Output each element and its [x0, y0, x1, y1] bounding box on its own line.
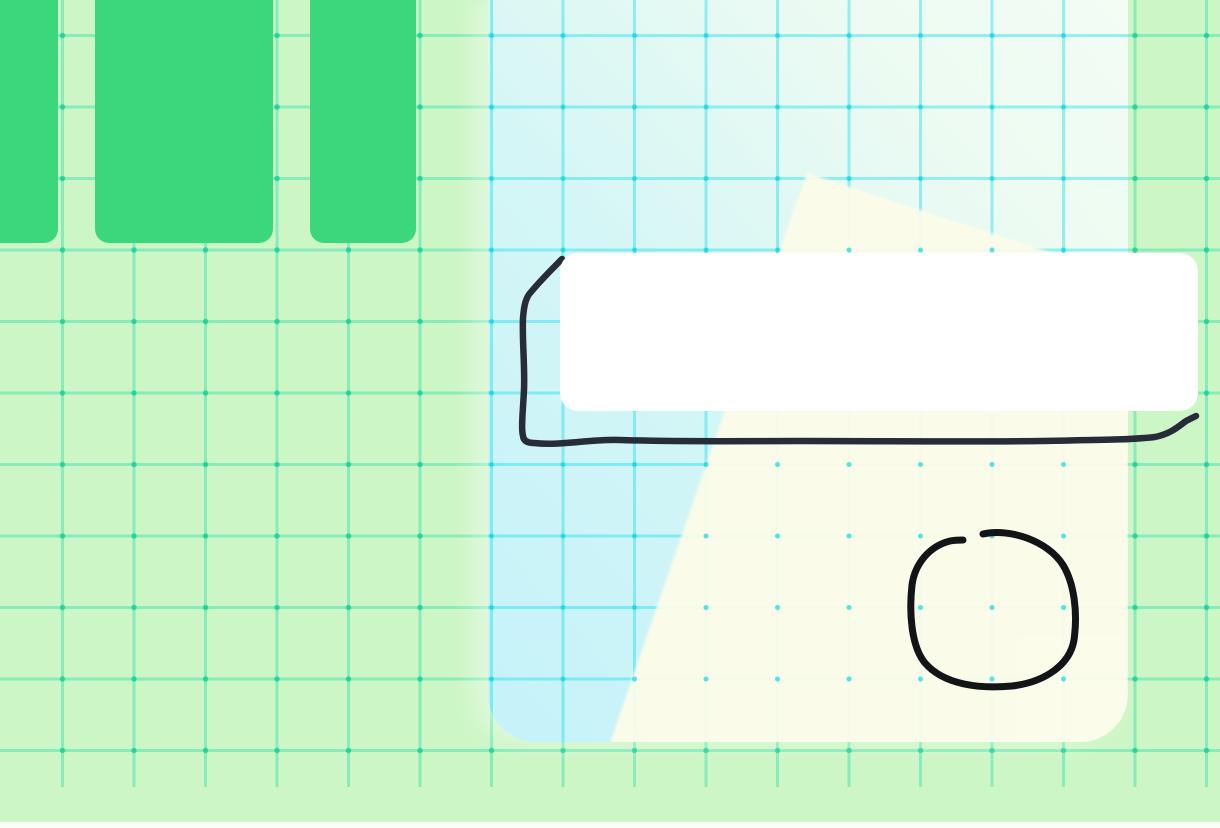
- window-bottom-edge: [0, 822, 1220, 828]
- note-box[interactable]: [560, 253, 1198, 411]
- ink-layer: [0, 0, 1220, 828]
- drawn-circle-stroke[interactable]: [911, 533, 1076, 687]
- canvas[interactable]: [0, 0, 1220, 828]
